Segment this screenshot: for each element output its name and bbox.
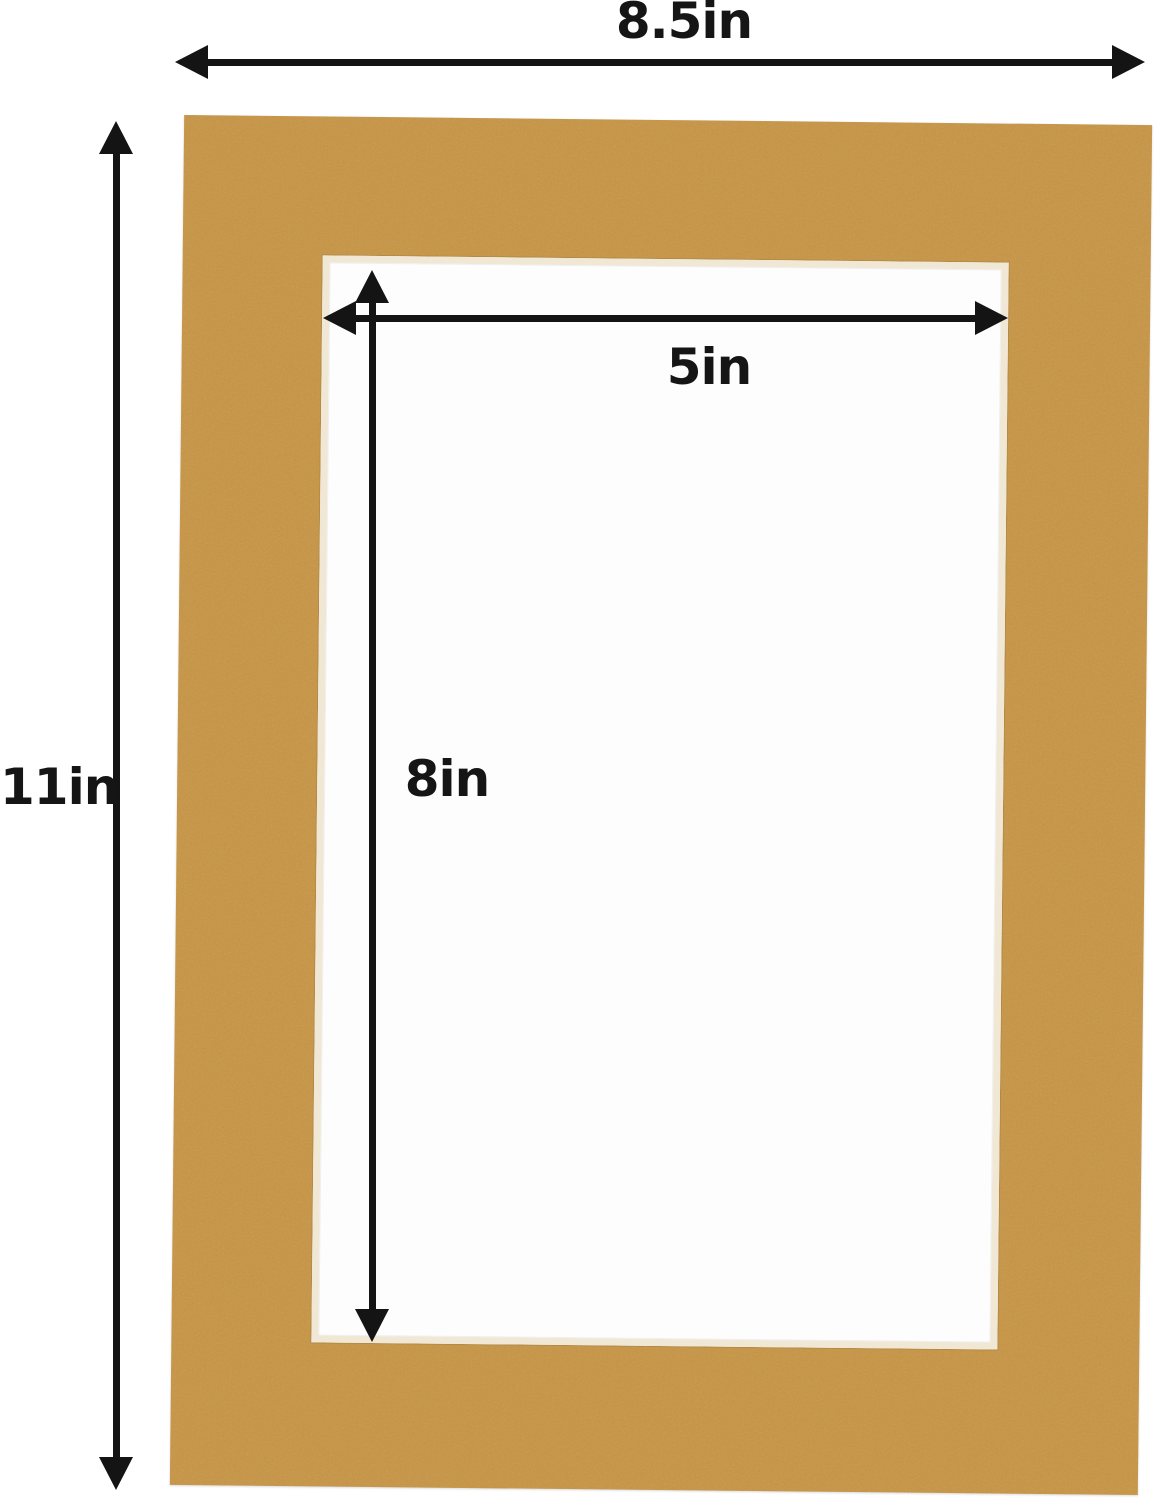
arrowhead-down-icon: [355, 1309, 389, 1342]
outer-width-label: 8.5in: [616, 0, 752, 46]
arrowhead-right-icon: [975, 301, 1008, 335]
outer-width-arrow: [175, 45, 1145, 79]
arrowhead-right-icon: [1112, 45, 1145, 79]
opening-width-arrow: [323, 301, 1008, 335]
arrow-line: [201, 59, 1119, 66]
opening-height-arrow: [355, 270, 389, 1342]
opening-width-label: 5in: [667, 342, 752, 392]
outer-height-label: 11in: [0, 762, 100, 812]
arrow-line: [349, 315, 982, 322]
mat-dimension-diagram: 8.5in 11in 5in 8in: [0, 0, 1160, 1500]
opening-height-label: 8in: [405, 754, 490, 804]
arrowhead-down-icon: [99, 1457, 133, 1490]
arrow-line: [369, 296, 376, 1316]
